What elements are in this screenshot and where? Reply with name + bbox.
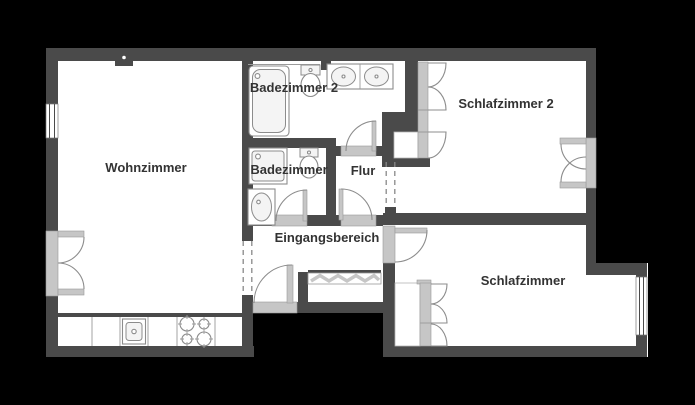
window-right [636, 277, 647, 335]
wardrobe-door-strip [420, 283, 431, 346]
wall-segment [394, 158, 430, 167]
wall-segment [46, 48, 58, 356]
washbasin-drain [375, 75, 378, 78]
washbasin [248, 189, 275, 225]
window-glass [636, 277, 647, 335]
room-label-schlafzimmer-2: Schlafzimmer 2 [458, 96, 553, 111]
bathtub [249, 66, 289, 136]
window-glass [46, 104, 58, 138]
door-leaf [560, 138, 586, 144]
floor-west-block [46, 48, 253, 356]
room-label-schlafzimmer: Schlafzimmer [481, 273, 566, 288]
bathtub-drain [255, 74, 260, 79]
room-label-badezimmer-2: Badezimmer 2 [250, 80, 338, 95]
wall-segment [326, 146, 341, 156]
door-leaf [58, 231, 84, 237]
toilet-button [309, 68, 312, 71]
wall-segment [383, 346, 647, 357]
door-leaf [58, 289, 84, 295]
window-left [46, 104, 58, 138]
room-label-badezimmer: Badezimmer [250, 162, 327, 177]
wardrobe-body [395, 283, 420, 346]
wardrobe-body [394, 132, 418, 158]
door-leaf [287, 265, 293, 303]
floor-plan-canvas: Wohnzimmer Badezimmer 2 Badezimmer Flur … [0, 0, 695, 405]
wall-segment [586, 263, 647, 275]
wall-segment [383, 263, 395, 356]
door-leaf [339, 189, 343, 220]
door-sill [46, 231, 58, 296]
door-leaf [560, 182, 586, 188]
door-sill [586, 138, 596, 188]
coat-rack-rail [308, 270, 381, 273]
coat-rack-wardrobe [308, 270, 381, 284]
wall-segment [46, 346, 254, 357]
toilet-button [308, 151, 311, 154]
door-sill [253, 302, 297, 313]
counter-edge [58, 313, 242, 317]
washbasin-drain [257, 200, 261, 204]
wall-segment [382, 112, 418, 132]
wall-segment [376, 215, 383, 226]
wall-segment [586, 188, 596, 275]
wall-segment [307, 215, 341, 226]
wall-segment [405, 61, 418, 112]
wall-segment [297, 302, 394, 313]
sink-drain [132, 329, 136, 333]
shower-drain [256, 154, 261, 159]
chimney-dot [122, 56, 126, 60]
wall-segment [242, 295, 253, 356]
door-leaf [303, 190, 307, 221]
bathtub-basin [253, 70, 286, 133]
door-sill [272, 215, 307, 226]
room-label-eingangsbereich: Eingangsbereich [275, 230, 380, 245]
door-sill [341, 215, 376, 226]
kitchen-sink [123, 319, 146, 344]
floor-plan: Wohnzimmer Badezimmer 2 Badezimmer Flur … [0, 0, 695, 405]
washbasin-drain [342, 75, 345, 78]
chimney-flue [115, 50, 133, 66]
door-leaf [372, 121, 376, 151]
door-sill [383, 226, 395, 263]
room-label-wohnzimmer: Wohnzimmer [105, 160, 186, 175]
wall-segment [298, 272, 308, 304]
washbasin-bowl [252, 193, 272, 221]
door-leaf [395, 228, 427, 233]
wall-segment [242, 138, 331, 148]
wall-segment [586, 48, 596, 138]
room-label-flur: Flur [351, 163, 376, 178]
wall-segment [383, 213, 596, 225]
